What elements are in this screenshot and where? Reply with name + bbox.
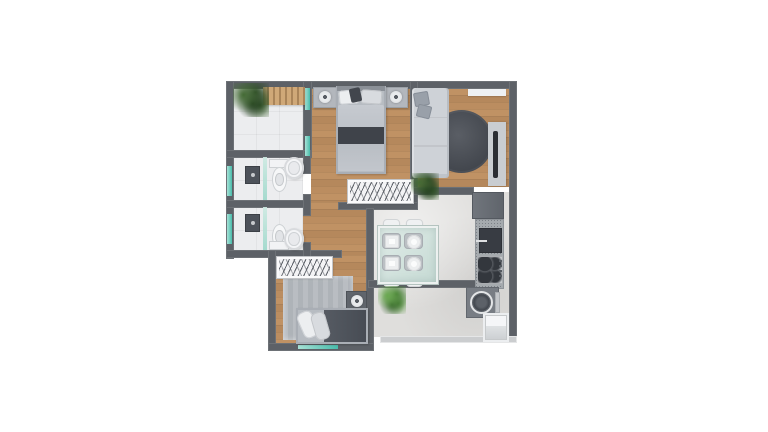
bedroom-2-wardrobe (277, 257, 332, 278)
wall-right (509, 81, 517, 343)
bedroom-1-pillow-right (361, 89, 383, 104)
living-tv-screen (493, 131, 498, 178)
bathroom-2-window (227, 214, 232, 244)
bedroom-1-throw (338, 127, 384, 144)
bathroom-1-sink (284, 157, 304, 179)
bathroom-1-window (227, 166, 232, 196)
dining-plate-square-2 (385, 257, 399, 270)
kitchen-washer-drum (470, 291, 493, 314)
living-plant (411, 173, 439, 200)
bathroom-1-shower-fixture (245, 166, 260, 184)
bedroom-1-lamp-right (390, 91, 402, 103)
wall-bath-divider (226, 200, 310, 208)
bedroom-1-lamp-left (319, 91, 331, 103)
wall-bedroom2-left (268, 250, 276, 351)
bedroom-1-wardrobe (348, 180, 413, 203)
bedroom-1-window-upper (305, 88, 310, 110)
kitchen-stove (477, 256, 503, 284)
kitchen-fridge (472, 192, 504, 219)
bedroom-2-window (298, 345, 338, 349)
bathroom-1-shower-glass (263, 157, 267, 200)
bathroom-2-sink (284, 228, 304, 250)
dining-plate-square-1 (385, 235, 399, 248)
balcony-bench (263, 87, 305, 105)
floor-plan (0, 0, 768, 432)
bathroom-2-shower-glass (263, 207, 267, 250)
dining-plate-round-1 (407, 235, 421, 249)
bedroom-2-duvet (324, 310, 366, 342)
wall-bedroom1-bottom (338, 202, 418, 210)
wall-bath-right-c (303, 242, 311, 258)
bedroom-1-window-lower (305, 136, 310, 156)
bathroom-2-shower-fixture (245, 214, 260, 232)
dining-plant (378, 286, 406, 314)
bedroom-2-lamp (351, 295, 363, 307)
dining-plate-round-2 (407, 257, 421, 271)
kitchen-tank (483, 313, 509, 342)
kitchen-washer-panel (495, 292, 500, 313)
wall-balcony-bottom (226, 150, 312, 158)
living-shelf (468, 89, 506, 96)
kitchen-sink (479, 228, 502, 253)
balcony-plant (233, 83, 269, 117)
wall-bath-right-b (303, 194, 311, 216)
